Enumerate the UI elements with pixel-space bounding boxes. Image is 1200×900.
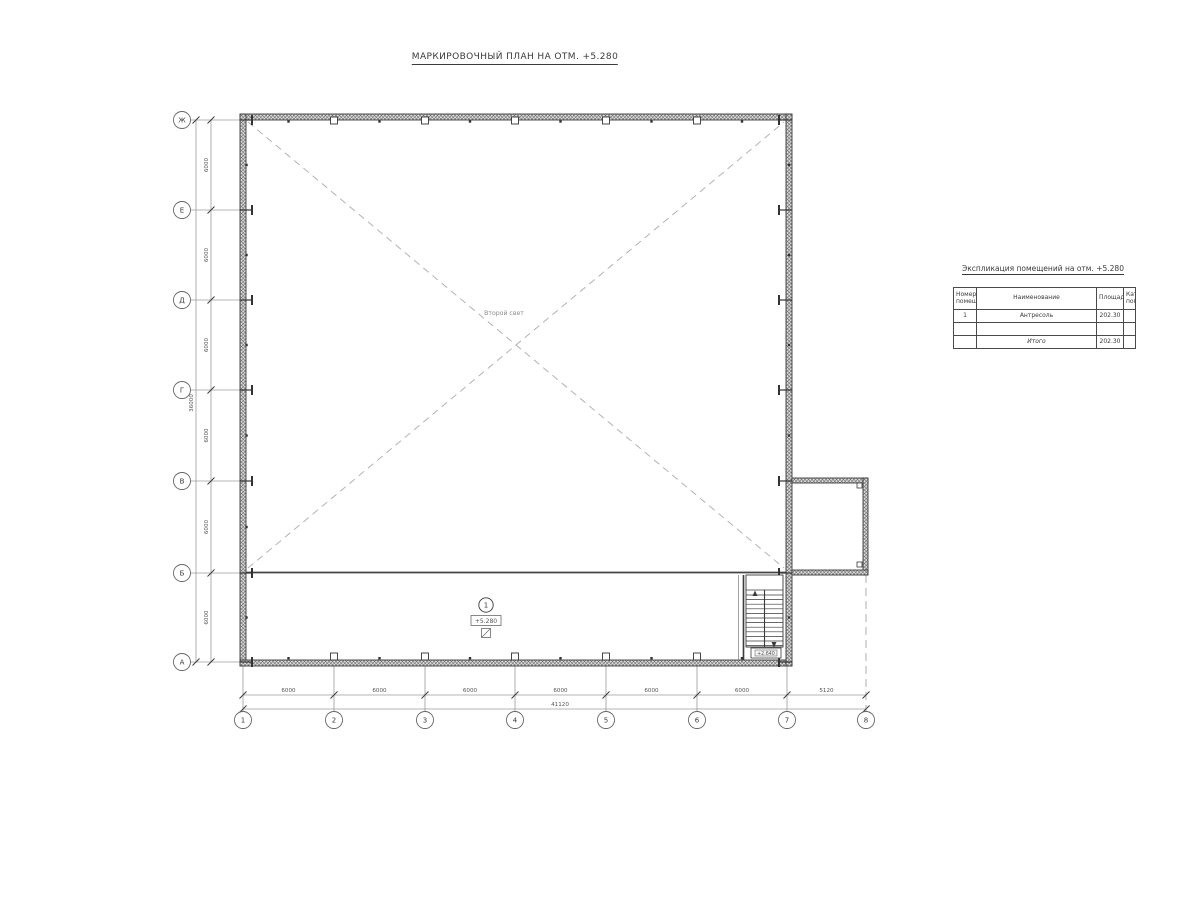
dim-left-1: 6000 — [204, 157, 210, 172]
void-label: Второй свет — [484, 309, 524, 317]
svg-text:2: 2 — [332, 717, 336, 725]
room-number: 1 — [484, 602, 488, 610]
svg-text:6: 6 — [695, 717, 700, 725]
total-area: 202.30 — [1097, 336, 1124, 349]
col-header-area: Площадь — [1097, 288, 1124, 310]
dim-bottom-total: 41120 — [551, 702, 569, 708]
dim-bottom-5: 6000 — [644, 688, 659, 694]
void-cross-lines — [248, 122, 784, 568]
svg-text:Ж: Ж — [178, 117, 186, 125]
room-level: +5.280 — [475, 618, 497, 625]
dim-left-3: 6000 — [204, 337, 210, 352]
svg-text:1: 1 — [241, 717, 245, 725]
explication-title: Экспликация помещений на отм. +5.280 — [962, 264, 1124, 275]
total-label: Итого — [977, 336, 1097, 349]
svg-text:Д: Д — [179, 297, 185, 305]
bumpout-corner-plates — [857, 483, 862, 567]
dim-bottom-7: 5120 — [819, 688, 834, 694]
row1-number: 1 — [954, 310, 977, 323]
intermediate-column-dots — [245, 120, 790, 659]
explication-header-row: Номер помещ. Наименование Площадь Кат. п… — [954, 288, 1136, 310]
dim-bottom-3: 6000 — [463, 688, 478, 694]
room-tag: 1 +5.280 — [471, 598, 501, 638]
svg-text:4: 4 — [513, 717, 518, 725]
dim-left-6: 6000 — [204, 610, 210, 625]
col-header-category: Кат. пом. — [1124, 288, 1136, 310]
svg-text:Б: Б — [180, 570, 185, 578]
dim-bottom-2: 6000 — [372, 688, 387, 694]
explication-row-2 — [954, 323, 1136, 336]
stair-level-label: +2.640 — [757, 651, 775, 657]
col-header-name: Наименование — [977, 288, 1097, 310]
left-dimension-chain: 6000 6000 6000 6000 6000 6000 36000 — [189, 117, 215, 666]
svg-text:7: 7 — [785, 717, 789, 725]
dim-bottom-6: 6000 — [735, 688, 750, 694]
dim-left-2: 6000 — [204, 247, 210, 262]
row1-category — [1124, 310, 1136, 323]
svg-text:Е: Е — [180, 207, 184, 215]
dim-left-5: 6000 — [204, 519, 210, 534]
staircase: +2.640 — [739, 575, 784, 660]
col-axis-bubbles — [235, 712, 875, 729]
col-axis-labels: 1 2 3 4 5 6 7 8 — [241, 717, 868, 725]
svg-text:8: 8 — [864, 717, 868, 725]
explication-table: Номер помещ. Наименование Площадь Кат. п… — [953, 287, 1136, 349]
row1-area: 202.30 — [1097, 310, 1124, 323]
svg-text:5: 5 — [604, 717, 608, 725]
explication-row-1: 1 Антресоль 202.30 — [954, 310, 1136, 323]
svg-text:Г: Г — [180, 387, 184, 395]
svg-text:А: А — [180, 659, 185, 667]
row1-name: Антресоль — [977, 310, 1097, 323]
square-column-symbols — [331, 117, 701, 660]
dim-left-total: 36000 — [189, 394, 195, 412]
floor-plan-canvas: Второй свет — [0, 0, 1200, 900]
svg-text:3: 3 — [423, 717, 427, 725]
svg-text:В: В — [180, 478, 185, 486]
steel-column-symbols — [240, 115, 792, 667]
col-header-number: Номер помещ. — [954, 288, 977, 310]
dim-bottom-4: 6000 — [553, 688, 568, 694]
dim-left-4: 6000 — [204, 428, 210, 443]
dim-bottom-1: 6000 — [281, 688, 296, 694]
explication-total-row: Итого 202.30 — [954, 336, 1136, 349]
drawing-sheet: МАРКИРОВОЧНЫЙ ПЛАН НА ОТМ. +5.280 — [0, 0, 1200, 900]
